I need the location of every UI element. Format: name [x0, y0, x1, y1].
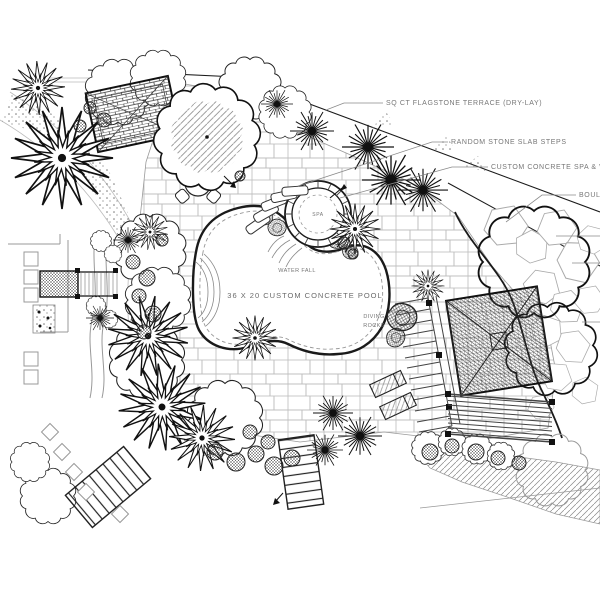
landscape-plan-drawing: SQ CT FLAGSTONE TERRACE (DRY-LAY) RANDOM… — [0, 0, 600, 600]
spa-label: SPA — [312, 212, 323, 218]
waterfall-label: WATER FALL — [278, 268, 316, 274]
diving-rocks-label-2: ROCKS — [363, 323, 385, 329]
pavilion — [446, 286, 552, 395]
boulders-callout-label: BOUL — [579, 192, 600, 199]
flagstone-label: SQ CT FLAGSTONE TERRACE (DRY-LAY) — [386, 100, 542, 107]
pool-label: 36 X 20 CUSTOM CONCRETE POOL — [227, 291, 382, 300]
slab-steps-label: RANDOM STONE SLAB STEPS — [451, 139, 567, 146]
stipple-bed — [33, 305, 55, 333]
diving-rocks-label-1: DIVING — [363, 314, 384, 320]
spa-callout-label: CUSTOM CONCRETE SPA & WAT — [491, 164, 600, 171]
